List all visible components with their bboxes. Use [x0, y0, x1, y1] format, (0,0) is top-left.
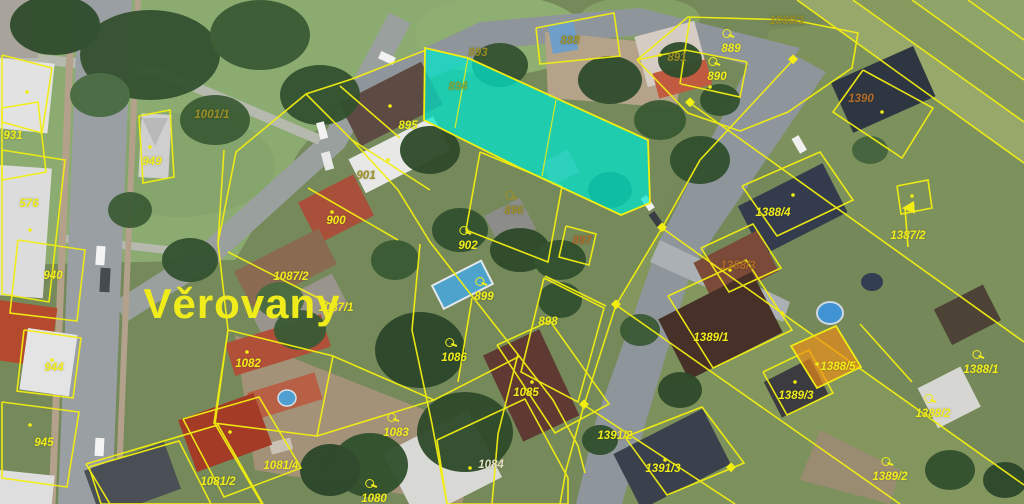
cadastral-map[interactable]: 1001/18938888898918901060/11390894895901…	[0, 0, 1024, 504]
map-base-orthophoto	[0, 0, 1024, 504]
